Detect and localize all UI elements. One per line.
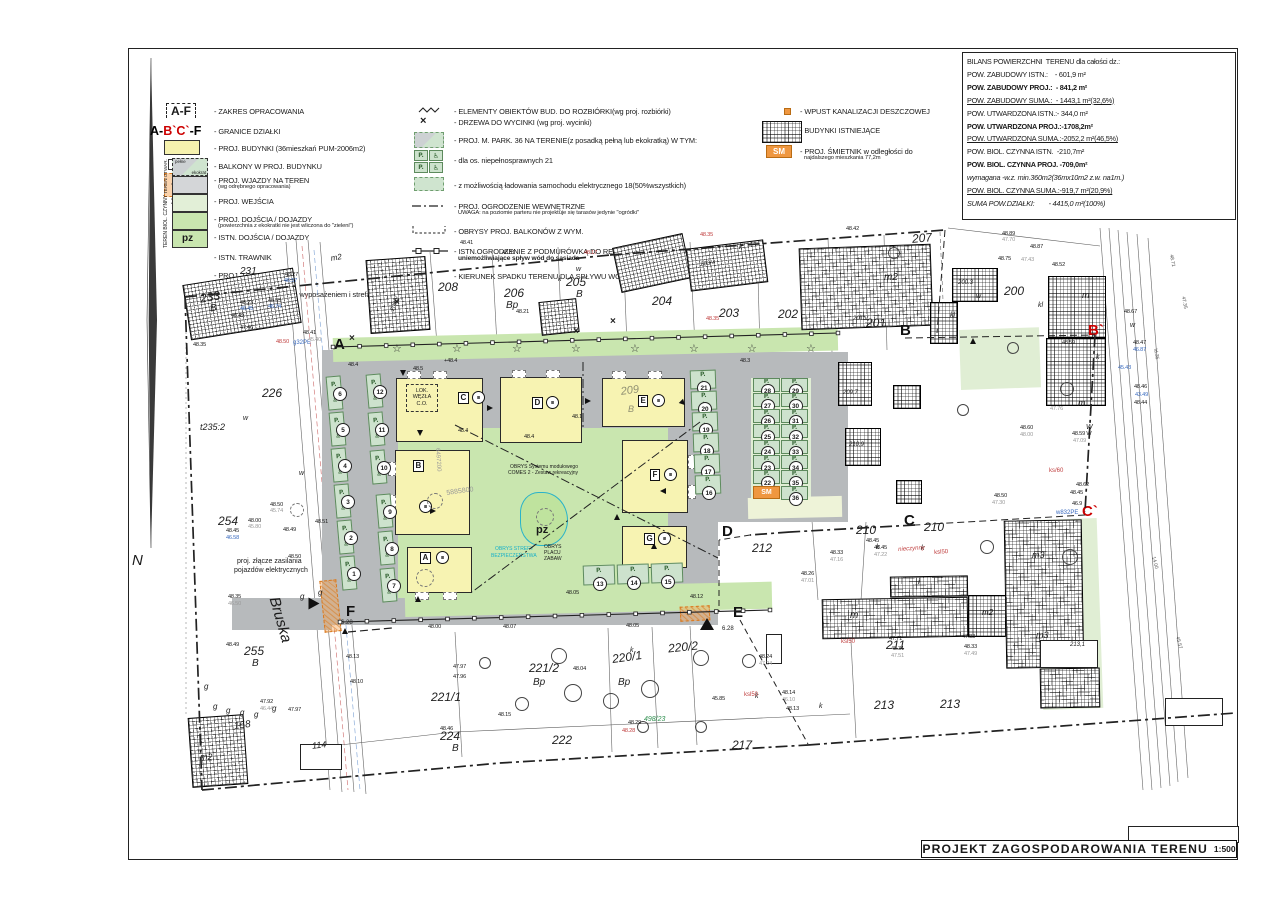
elevation-label: 46.57 [284,278,297,284]
plan-drawing: LOK.WĘZŁAC.O.pzP.♿6P.♿5P.♿4P.♿3P.♿2P.♿1P… [0,0,1280,905]
plan-annotation: 6.28 [722,626,734,632]
plan-annotation: m2 [330,252,343,263]
boundary-marker-C: C [904,512,915,529]
building-letter-label: F [650,469,660,481]
parking-stall-number: 4 [338,459,352,473]
elevation-label: 47.22 [874,552,887,558]
elevation-label: 48.46 [440,726,453,732]
elevation-label: 48.41 [303,330,316,336]
parking-stall-number: 7 [387,579,401,593]
elevation-label: 48.17 [584,250,597,256]
parking-stall-number: 12 [373,385,387,399]
elevation-label: 48.4 [458,428,468,434]
elevation-label: 47.43 [1021,257,1034,263]
elevation-label: 48.50 [288,554,301,560]
balcony-outline [407,371,421,379]
elevation-label: 48.62 [1076,482,1089,488]
existing-building [890,575,968,597]
existing-building [612,233,692,293]
boundary-marker-E: E [733,604,743,621]
elevation-label: 46.44 [260,706,273,712]
parking-stall-number: 5 [336,423,350,437]
balcony-outline [443,592,457,600]
tree-star-icon: ☆ [689,342,699,355]
elevation-label: 48.44 [1134,400,1147,406]
balcony-outline [546,370,560,378]
parcel-label: t235:2 [200,422,225,432]
tree-icon [641,680,659,698]
parcel-label: 217 [732,738,752,752]
elevation-label: 48.13 [786,706,799,712]
balcony-outline [433,371,447,379]
elevation-label: 48.4 [524,434,534,440]
building-letter-label: A [420,552,431,564]
balcony-outline [612,371,626,379]
plan-annotation: g [300,592,304,601]
elevation-label: 48.50 [994,493,1007,499]
tree-icon [1007,342,1019,354]
tree-star-icon: ☆ [392,342,402,355]
elevation-label: 47.16 [830,557,843,563]
parcel-label: Bp [618,677,630,688]
parcel-label: 203 [719,306,739,320]
elevation-label: 48.04 [573,666,586,672]
plan-annotation: 213,1 [1070,642,1085,648]
elevation-label: 47.51 [891,653,904,659]
elevation-label: 48.45 [226,528,239,534]
elevation-label: 48.28 [622,728,635,734]
parcel-label: 222 [552,733,572,747]
elevation-label: 48.26 [801,571,814,577]
elevation-label: 48.49 [231,313,244,319]
entrance-arrow-icon [309,598,320,610]
boundary-marker-Bp: B` [1088,322,1104,339]
building-storeys-label: III [546,396,559,409]
tree-star-icon: ☆ [806,342,816,355]
parcel-label: 205 [566,275,586,289]
plan-annotation: OBRYS STREFY [495,546,534,552]
parking-stall-number: 3 [341,495,355,509]
plan-annotation: m3 [1036,630,1049,640]
plan-annotation: 209,7 [843,390,858,396]
existing-structure [1165,698,1223,726]
boundary-marker-F: F [346,603,355,620]
tree-cut-mark: × [573,326,579,337]
tree-cut-mark: × [610,316,616,327]
smietnik-box: SM [753,486,780,499]
tree-cut-mark: × [349,333,355,344]
elevation-label: 48.4 [348,362,358,368]
plan-annotation: 498/23 [644,716,665,723]
elevation-label: 45.40 [308,337,321,343]
building-letter-label: C [458,392,469,404]
parcel-label: 220/1 [611,648,643,666]
tree-icon [957,404,969,416]
plan-annotation: 48.71 [1168,254,1176,267]
elevation-label: 48.51 [315,519,328,525]
existing-building [893,385,921,409]
plan-annotation: 209 [620,383,640,397]
parcel-label: B [209,303,217,315]
parcel-label: 226 [262,386,282,400]
elevation-label: 47.71 [889,636,902,642]
elevation-label: 48.33 [830,550,843,556]
entrance-arrow-icon [585,398,591,404]
plan-annotation: pojazdów elektrycznych [234,567,308,574]
elevation-label: 47.83 [962,634,975,640]
elevation-label: 48.29 [628,720,641,726]
parking-stall-number: 6 [333,387,347,401]
parking-stall-number: 13 [593,577,607,591]
elevation-label: 48.5 [413,366,423,372]
elevation-label: 48.07 [503,624,516,630]
parcel-label: 221/1 [431,690,461,704]
parcel-label: Bp [533,677,545,688]
parcel-label: 206 [504,286,524,300]
elevation-label: 46.74 [268,304,281,310]
elevation-label: 48.41 [460,240,473,246]
parcel-label: 207 [911,230,932,246]
entrance-arrow-icon [487,405,493,411]
balcony-outline [648,371,662,379]
parking-stall-number: 15 [661,575,675,589]
existing-building [822,597,969,640]
parking-stall-number: 1 [347,567,361,581]
proposed-tree-icon [427,493,443,509]
proposed-tree-icon [536,508,554,526]
proposed-tree-icon [290,503,304,517]
tree-icon [1060,382,1074,396]
tree-icon [980,540,994,554]
entrance-arrow-icon [417,430,423,436]
boundary-marker-D: D [722,523,733,540]
plan-annotation: B [628,404,634,414]
existing-building [930,302,958,344]
plan-annotation: w [976,293,981,300]
elevation-label: 46.45 [240,306,253,312]
elevation-label: 47.76 [1050,406,1063,412]
elevation-label: 48.35 [228,594,241,600]
elevation-label: 48.31 [502,250,515,256]
elevation-label: 48.15 [498,712,511,718]
elevation-label: 48.05 [626,623,639,629]
plan-annotation: g [204,682,208,691]
parcel-label: 202 [778,307,798,321]
plan-annotation: k [1096,354,1100,361]
plan-annotation: k [558,276,562,283]
elevation-label: 48.21 [516,309,529,315]
elevation-label: 47.24 [759,661,772,667]
building-letter-label: D [532,397,543,409]
plan-annotation: m2 [982,608,993,617]
parking-stall-number: 8 [385,542,399,556]
parcel-label: 158 [233,719,251,732]
plan-annotation: kl [950,312,955,319]
balcony-outline [512,370,526,378]
elevation-label: 46.10 [782,697,795,703]
site-plan-sheet: N A-F- ZAKRES OPRACOWANIAA-B`C`-F- GRANI… [0,0,1280,905]
elevation-label: 48.49 [226,642,239,648]
parking-stall-number: 11 [375,423,389,437]
tree-icon [603,693,619,709]
plan-annotation: ksl50 [934,549,948,556]
elevation-label: 48.42 [846,226,859,232]
plan-annotation: k [819,703,823,710]
tree-icon [515,697,529,711]
plan-annotation: w [1130,322,1135,329]
parcel-label: 221/2 [529,661,559,675]
parcel-label: 208 [438,280,458,294]
lok-wezla-line: C.O. [407,401,437,407]
parcel-label: B [252,658,259,669]
plan-annotation: w [243,415,248,422]
building-storeys-label: III [472,391,485,404]
parcel-label: B [452,743,459,754]
plan-annotation: m3 [1032,550,1045,560]
existing-structure [1040,640,1098,668]
elevation-label: 47.97 [453,664,466,670]
elevation-label: 46.58 [226,535,239,541]
building-letter-label: B [413,460,424,472]
elevation-label: 48.45 [874,545,887,551]
elevation-label: 48.00 [1020,432,1033,438]
plan-annotation: ks/60 [1049,468,1063,474]
plan-annotation: COMES 2 - Zestaw rekreacyjny [508,470,578,476]
elevation-label: 48.45 [866,538,879,544]
entrance-arrow-icon [415,596,421,602]
building-storeys-label: III [652,394,665,407]
parcel-label: 114 [312,739,327,750]
elevation-label: 47.30 [992,500,1005,506]
boundary-marker-Cp: C` [1082,503,1098,520]
elevation-label: 45.74 [270,508,283,514]
plan-annotation: kl [1038,302,1043,309]
drawing-scale: 1:500 [1214,844,1236,854]
elevation-label: 47.49 [964,651,977,657]
elevation-label: 48.3 [740,358,750,364]
tree-star-icon: ☆ [630,342,640,355]
plan-annotation: m [1082,290,1090,300]
building-storeys-label: III [658,532,671,545]
parking-stall-number: 14 [627,576,641,590]
tree-icon [1062,549,1078,565]
plan-annotation: g [318,588,322,597]
plan-annotation: w [299,470,304,477]
plan-annotation: k [739,244,743,251]
elevation-label: 46.87 [1133,347,1146,353]
plan-annotation: g [254,710,258,719]
elevation-label: 48.59 [1062,340,1075,346]
existing-building [686,239,769,291]
proposed-building [500,377,582,443]
tree-star-icon: ☆ [452,342,462,355]
elevation-label: 47.96 [453,674,466,680]
entrance-arrow-icon [970,338,976,344]
elevation-label: 48.67 [1124,309,1137,315]
elevation-label: 48.1 [572,414,582,420]
lawn-area [959,327,1041,390]
elevation-label: 48.00 [428,624,441,630]
elevation-label: 48.24 [759,654,772,660]
plan-annotation: i [918,577,920,586]
elevation-label: 47.01 [801,578,814,584]
tree-icon [479,657,491,669]
plan-annotation: g [226,706,230,715]
plan-annotation: w [576,266,581,273]
plan-annotation: 47.35 [1180,296,1188,309]
parcel-label: 210 [924,520,944,534]
plan-annotation: ksl50 [744,692,758,698]
elevation-label: 46.50 [228,601,241,607]
plan-annotation: 45.57 [1174,636,1183,650]
elevation-label: 47.92 [260,699,273,705]
elevation-label: 48.05 [566,590,579,596]
elevation-label: 48.59 W [1072,431,1091,437]
plan-annotation: Id.35 [1152,348,1160,360]
elevation-label: 48.12 [690,594,703,600]
proposed-tree-icon [416,569,434,587]
parcel-label: 200 [1004,284,1024,298]
elevation-label: 48.35 [193,342,206,348]
parking-stall-number: 10 [377,461,391,475]
plan-annotation: g [240,708,244,717]
elevation-label: +48.4 [444,358,457,364]
plan-annotation: m2 [884,272,898,283]
elevation-label: 48.47 [1133,340,1146,346]
title-block: PROJEKT ZAGOSPODAROWANIA TERENU 1:500 [921,840,1237,858]
building-letter-label: G [644,533,655,545]
elevation-label: 45.80 [248,524,261,530]
tree-star-icon: ☆ [747,342,757,355]
existing-building [1046,338,1106,406]
parcel-label: 231 [240,266,257,277]
entrance-arrow-icon [400,370,406,376]
existing-building [838,362,872,406]
parking-stall-number: 2 [344,531,358,545]
elevation-label: 47.97 [288,707,301,713]
elevation-label: 45.85 [712,696,725,702]
parcel-label: 201 [866,316,886,330]
elevation-label: 48.52 [1052,262,1065,268]
plan-annotation: k [630,647,634,654]
elevation-label: 48.10 [350,679,363,685]
plan-annotation: 210,9 [849,442,864,448]
elevation-label: 48.45 [1070,490,1083,496]
elevation-label: 48.14 [782,690,795,696]
entrance-arrow-icon [614,514,620,520]
plan-annotation: W [1086,424,1093,431]
existing-building [1040,667,1101,708]
tree-icon [888,247,900,259]
plan-annotation: ksl50 [841,639,855,645]
parcel-label: 213 [874,698,894,712]
parcel-label: 204 [652,294,672,308]
building-letter-label: E [638,395,648,407]
parcel-label: B [576,289,583,300]
boundary-marker-A: A [334,336,345,353]
elevation-label: 47.09 [1073,438,1086,444]
parcel-label: 212 [752,541,772,555]
entrance-arrow-icon [342,628,348,634]
parcel-label: 255 [244,644,264,658]
elevation-label: 48.33 [964,644,977,650]
plan-annotation: ZABAW [544,556,562,562]
plan-annotation: m [850,610,858,621]
tree-star-icon: ☆ [512,342,522,355]
existing-building [365,256,430,334]
parking-stall-number: 9 [383,505,397,519]
plan-annotation: BEZPIECZEŃSTWA [491,553,537,559]
plan-annotation: 6.28 [341,620,353,626]
parcel-label: 213 [940,697,960,711]
elevation-label: 48.49 [283,527,296,533]
plan-annotation: m2 [200,752,213,762]
tree-star-icon: ☆ [571,342,581,355]
elevation-label: 48.35 [706,316,719,322]
elevation-label: 48.50 [276,339,289,345]
plan-annotation: g [213,702,217,711]
elevation-label: 46.9 [1072,501,1082,507]
tree-icon [695,721,707,733]
elevation-label: 48.31 [891,646,904,652]
elevation-label: 45.43 [1118,365,1131,371]
plan-annotation: 14.00 [1150,556,1159,570]
parking-stall-number: 36 [789,492,803,506]
building-storeys-label: III [436,551,449,564]
plan-annotation: 200.3 [958,280,973,286]
tree-icon [564,684,582,702]
plan-annotation: m [1078,398,1086,408]
drawing-title: PROJEKT ZAGOSPODAROWANIA TERENU [922,842,1208,856]
plan-annotation: 201b/ [853,316,868,322]
elevation-label: 48.87 [1030,244,1043,250]
parcel-label: 254 [218,514,238,528]
existing-building [896,480,922,504]
elevation-label: 48.46 [1134,384,1147,390]
lok-wezla-co-label: LOK.WĘZŁAC.O. [406,384,438,412]
plan-annotation: w832PE [1056,510,1078,516]
elevation-label: 48.75 [998,256,1011,262]
building-storeys-label: III [664,468,677,481]
entrance-arrow-icon [660,488,666,494]
boundary-marker-B: B [900,322,911,339]
tree-icon [742,654,756,668]
parcel-label: 210 [856,523,876,537]
elevation-label: 48.13 [346,654,359,660]
entrance-arrow-icon [700,618,714,630]
elevation-label: 47.46 [240,325,253,331]
elevation-label: 48.35 [700,232,713,238]
elevation-label: 48.60 [1020,425,1033,431]
elevation-label: 43.49 [1135,392,1148,398]
parking-stall-number: 16 [702,486,716,500]
elevation-label: 47.70 [1002,237,1015,243]
